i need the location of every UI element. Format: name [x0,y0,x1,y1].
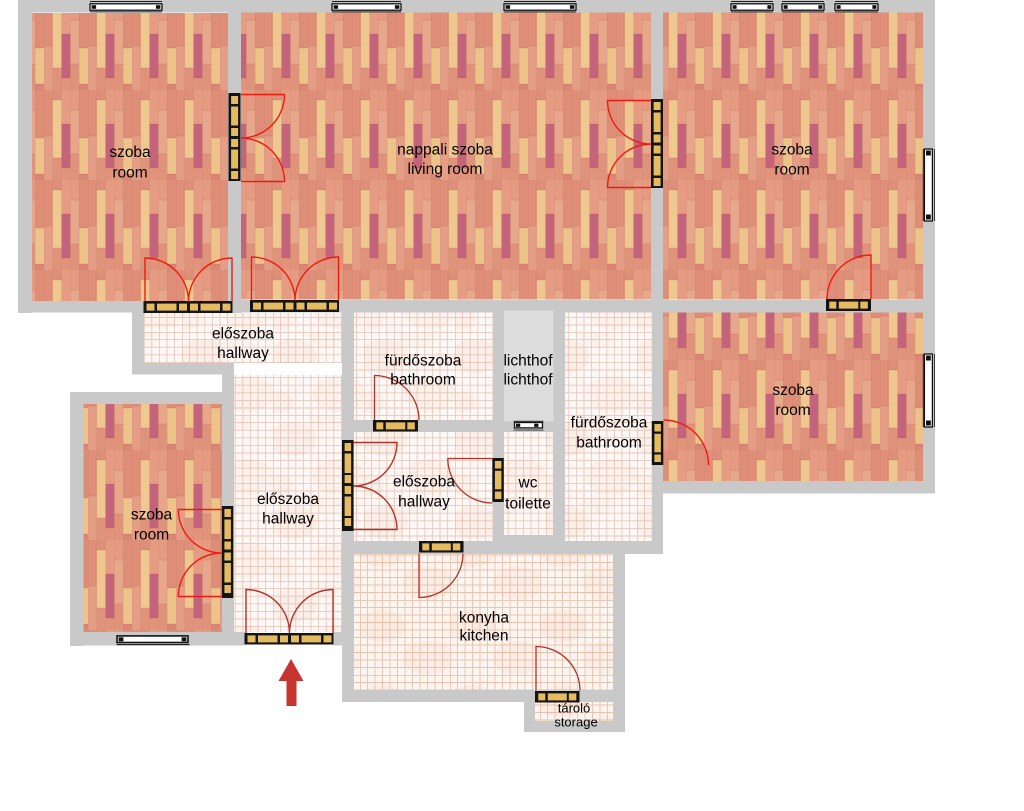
svg-text:room: room [774,162,809,179]
svg-text:room: room [112,165,147,182]
svg-text:room: room [775,402,810,419]
svg-text:szoba: szoba [109,144,151,161]
svg-text:szoba: szoba [771,142,813,159]
svg-text:fürdőszoba: fürdőszoba [385,353,462,370]
svg-text:lichthof: lichthof [503,372,553,389]
svg-text:konyha: konyha [459,610,509,627]
svg-text:előszoba: előszoba [257,491,319,508]
svg-text:kitchen: kitchen [459,628,508,645]
svg-text:szoba: szoba [131,507,173,524]
svg-text:szoba: szoba [772,382,814,399]
svg-text:előszoba: előszoba [212,326,274,343]
svg-text:tároló: tároló [558,701,591,716]
svg-text:előszoba: előszoba [393,474,455,491]
svg-text:hallway: hallway [262,511,314,528]
svg-text:living room: living room [408,161,483,178]
svg-text:room: room [134,527,169,544]
svg-text:bathroom: bathroom [576,435,641,452]
svg-text:wc: wc [518,475,538,492]
svg-text:toilette: toilette [505,496,551,513]
svg-text:hallway: hallway [217,345,269,362]
svg-text:nappali szoba: nappali szoba [397,142,493,159]
svg-text:bathroom: bathroom [390,372,455,389]
svg-text:lichthof: lichthof [503,353,553,370]
svg-text:fürdőszoba: fürdőszoba [571,415,648,432]
svg-text:hallway: hallway [398,494,450,511]
svg-text:storage: storage [554,715,597,730]
